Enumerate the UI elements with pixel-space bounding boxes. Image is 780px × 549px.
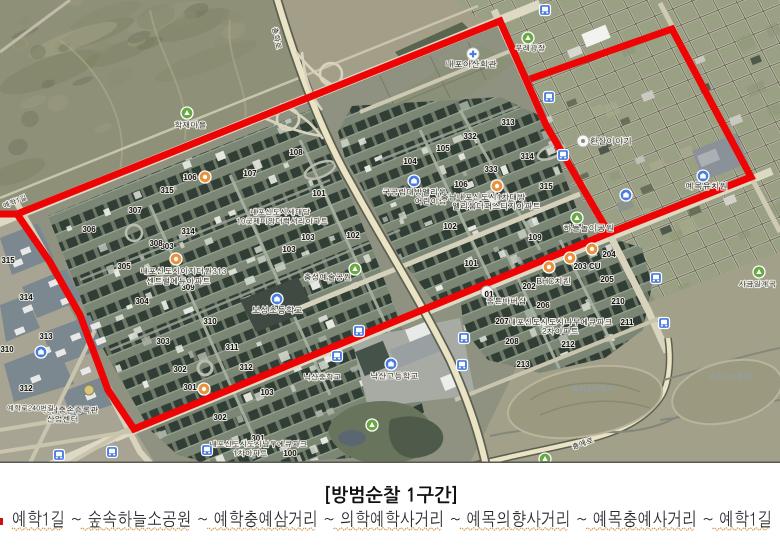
svg-text:102: 102 xyxy=(443,222,457,231)
svg-text:102: 102 xyxy=(346,231,360,240)
svg-text:306: 306 xyxy=(82,225,96,234)
svg-text:108: 108 xyxy=(289,148,303,157)
svg-text:315: 315 xyxy=(539,182,553,191)
svg-text:106: 106 xyxy=(454,180,468,189)
svg-text:212: 212 xyxy=(561,340,575,349)
svg-text:213: 213 xyxy=(516,360,530,369)
svg-text:302: 302 xyxy=(173,365,187,374)
svg-text:103: 103 xyxy=(301,233,315,242)
svg-text:310: 310 xyxy=(0,345,14,354)
svg-text:103: 103 xyxy=(260,388,274,397)
svg-text:314: 314 xyxy=(181,227,195,236)
svg-text:103: 103 xyxy=(282,245,296,254)
svg-text:205: 205 xyxy=(600,275,614,284)
svg-text:307: 307 xyxy=(128,206,142,215)
svg-text:101: 101 xyxy=(464,259,478,268)
svg-text:302: 302 xyxy=(213,413,227,422)
svg-text:105: 105 xyxy=(436,144,450,153)
svg-text:109: 109 xyxy=(528,233,542,242)
svg-text:315: 315 xyxy=(1,256,15,265)
svg-text:210: 210 xyxy=(611,297,625,306)
svg-text:305: 305 xyxy=(117,262,131,271)
svg-text:101: 101 xyxy=(312,189,326,198)
svg-text:311: 311 xyxy=(226,343,239,352)
svg-text:333: 333 xyxy=(484,165,498,174)
svg-text:312: 312 xyxy=(19,384,33,393)
svg-text:312: 312 xyxy=(239,363,253,372)
svg-text:206: 206 xyxy=(536,301,550,310)
svg-text:303: 303 xyxy=(156,337,170,346)
svg-text:314: 314 xyxy=(19,293,33,302)
svg-text:100: 100 xyxy=(283,449,297,458)
svg-text:315: 315 xyxy=(160,186,174,195)
svg-text:310: 310 xyxy=(203,317,217,326)
svg-text:204: 204 xyxy=(602,250,616,259)
svg-text:106: 106 xyxy=(183,173,197,182)
svg-text:313: 313 xyxy=(39,332,53,341)
svg-text:104: 104 xyxy=(403,157,417,166)
svg-text:208: 208 xyxy=(505,337,519,346)
svg-text:304: 304 xyxy=(135,297,149,306)
svg-text:308: 308 xyxy=(149,239,163,248)
svg-text:107: 107 xyxy=(243,169,257,178)
svg-text:203 CU: 203 CU xyxy=(573,262,600,271)
svg-text:314: 314 xyxy=(520,152,534,161)
svg-text:207: 207 xyxy=(495,317,509,326)
svg-text:313: 313 xyxy=(501,118,515,127)
svg-text:332: 332 xyxy=(463,132,477,141)
svg-text:211: 211 xyxy=(621,318,634,327)
svg-text:301: 301 xyxy=(183,383,197,392)
svg-text:202: 202 xyxy=(522,282,536,291)
